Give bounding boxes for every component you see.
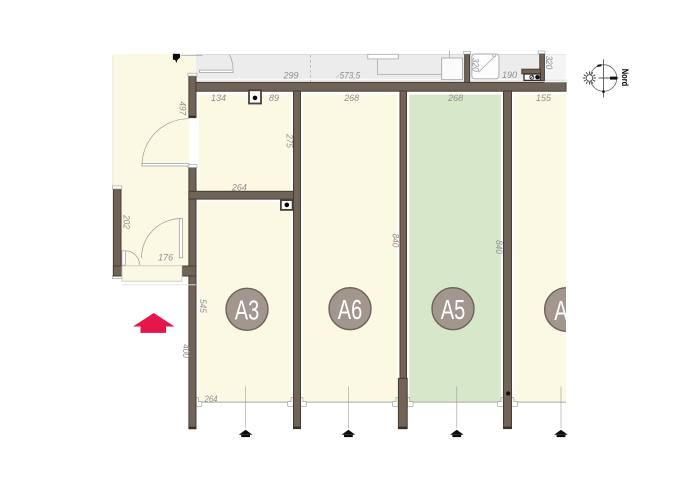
- svg-text:320: 320: [544, 56, 554, 70]
- svg-text:299: 299: [283, 70, 300, 81]
- svg-text:497: 497: [177, 101, 187, 116]
- svg-text:275: 275: [284, 133, 294, 149]
- svg-text:268: 268: [343, 93, 360, 104]
- svg-text:134: 134: [211, 93, 226, 104]
- svg-text:A5: A5: [441, 294, 466, 325]
- svg-text:A3: A3: [235, 295, 260, 326]
- svg-text:190: 190: [502, 70, 518, 81]
- svg-text:268: 268: [447, 93, 464, 104]
- svg-text:840: 840: [390, 234, 400, 248]
- svg-text:264: 264: [231, 182, 247, 193]
- svg-text:545: 545: [198, 299, 208, 314]
- svg-text:840: 840: [494, 240, 504, 254]
- svg-text:400: 400: [181, 344, 191, 358]
- svg-text:A6: A6: [338, 294, 363, 325]
- svg-text:320: 320: [471, 58, 481, 72]
- svg-text:155: 155: [536, 93, 552, 104]
- svg-text:264: 264: [204, 394, 218, 405]
- svg-text:Nord: Nord: [619, 69, 630, 87]
- svg-text:89: 89: [269, 93, 280, 104]
- svg-text:573,5: 573,5: [340, 71, 361, 82]
- svg-text:202: 202: [121, 214, 131, 229]
- svg-text:176: 176: [158, 253, 174, 264]
